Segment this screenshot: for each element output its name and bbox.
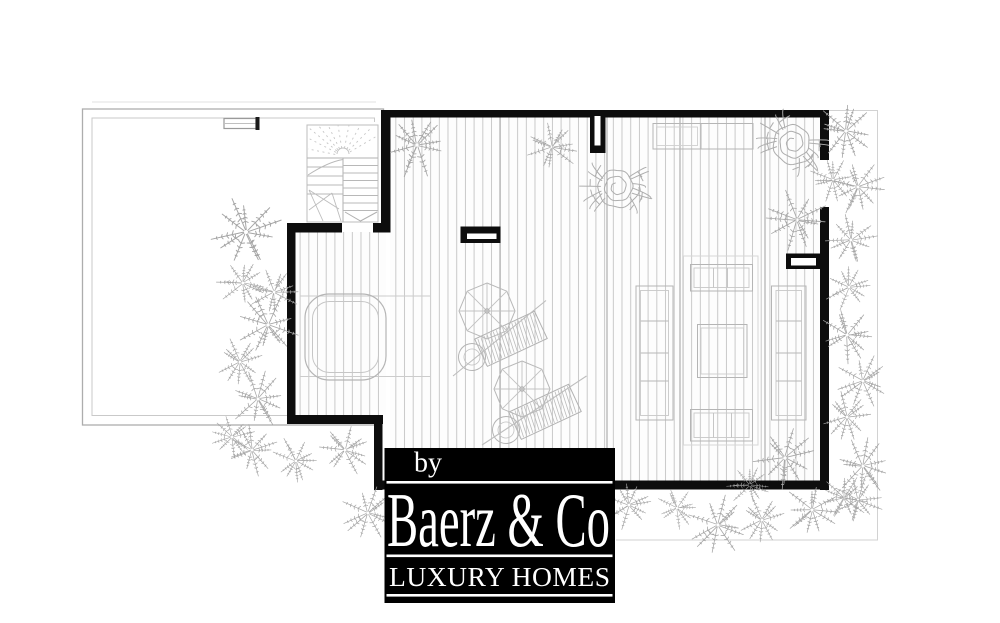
svg-text:Baerz & Co: Baerz & Co — [387, 477, 610, 563]
svg-text:by: by — [414, 448, 442, 479]
svg-text:LUXURY HOMES: LUXURY HOMES — [389, 561, 610, 592]
